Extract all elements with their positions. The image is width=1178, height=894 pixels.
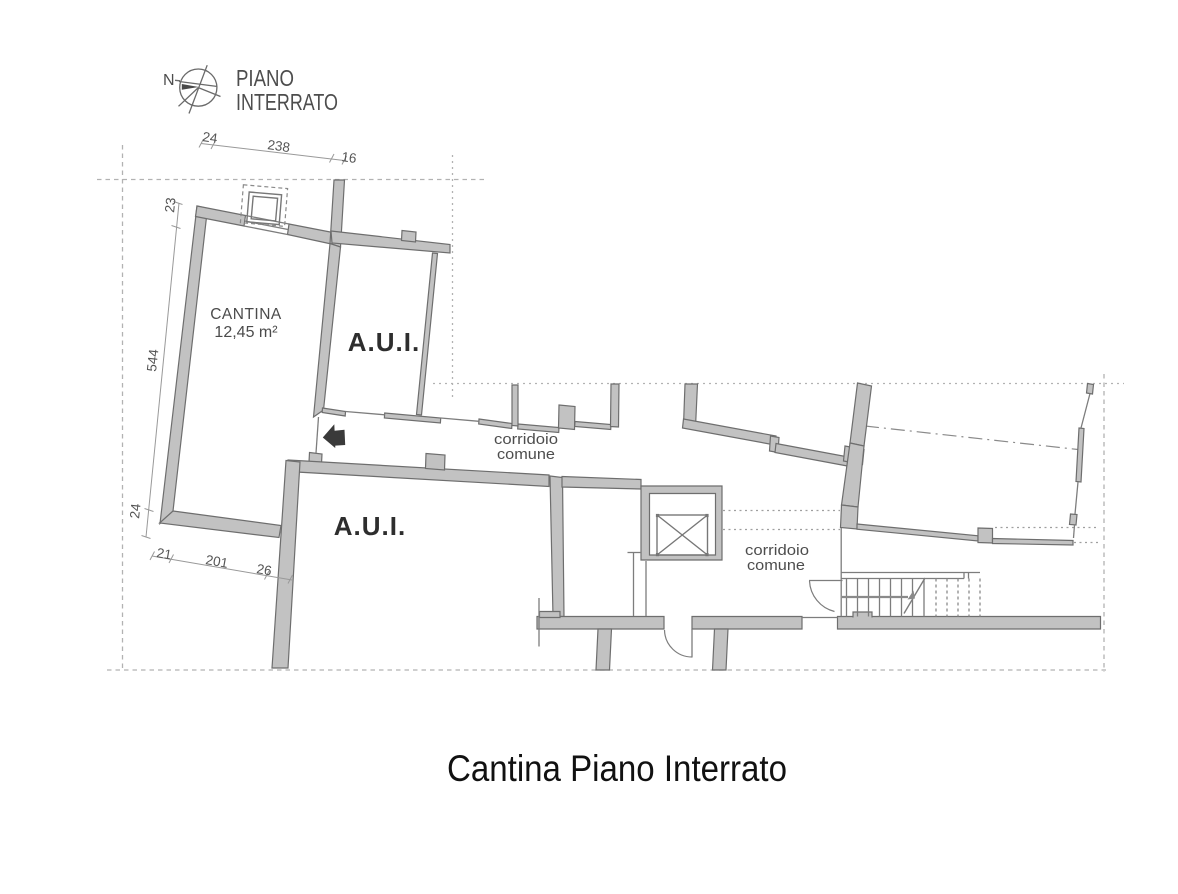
svg-text:N: N [163,72,175,89]
svg-text:Cantina Piano Interrato: Cantina Piano Interrato [447,747,787,789]
svg-text:238: 238 [267,137,291,155]
svg-text:INTERRATO: INTERRATO [236,89,338,115]
svg-text:A.U.I.: A.U.I. [334,511,406,541]
svg-text:24: 24 [127,502,144,519]
svg-text:26: 26 [255,561,272,578]
svg-text:21: 21 [155,545,172,562]
svg-text:12,45 m²: 12,45 m² [214,324,278,341]
svg-text:comune: comune [747,557,805,574]
svg-text:A.U.I.: A.U.I. [348,327,420,357]
svg-text:CANTINA: CANTINA [210,306,282,323]
svg-text:comune: comune [497,446,555,463]
svg-text:24: 24 [202,129,219,146]
svg-text:16: 16 [341,149,358,166]
svg-text:544: 544 [144,348,161,372]
svg-text:PIANO: PIANO [236,65,294,91]
svg-text:23: 23 [162,197,178,214]
